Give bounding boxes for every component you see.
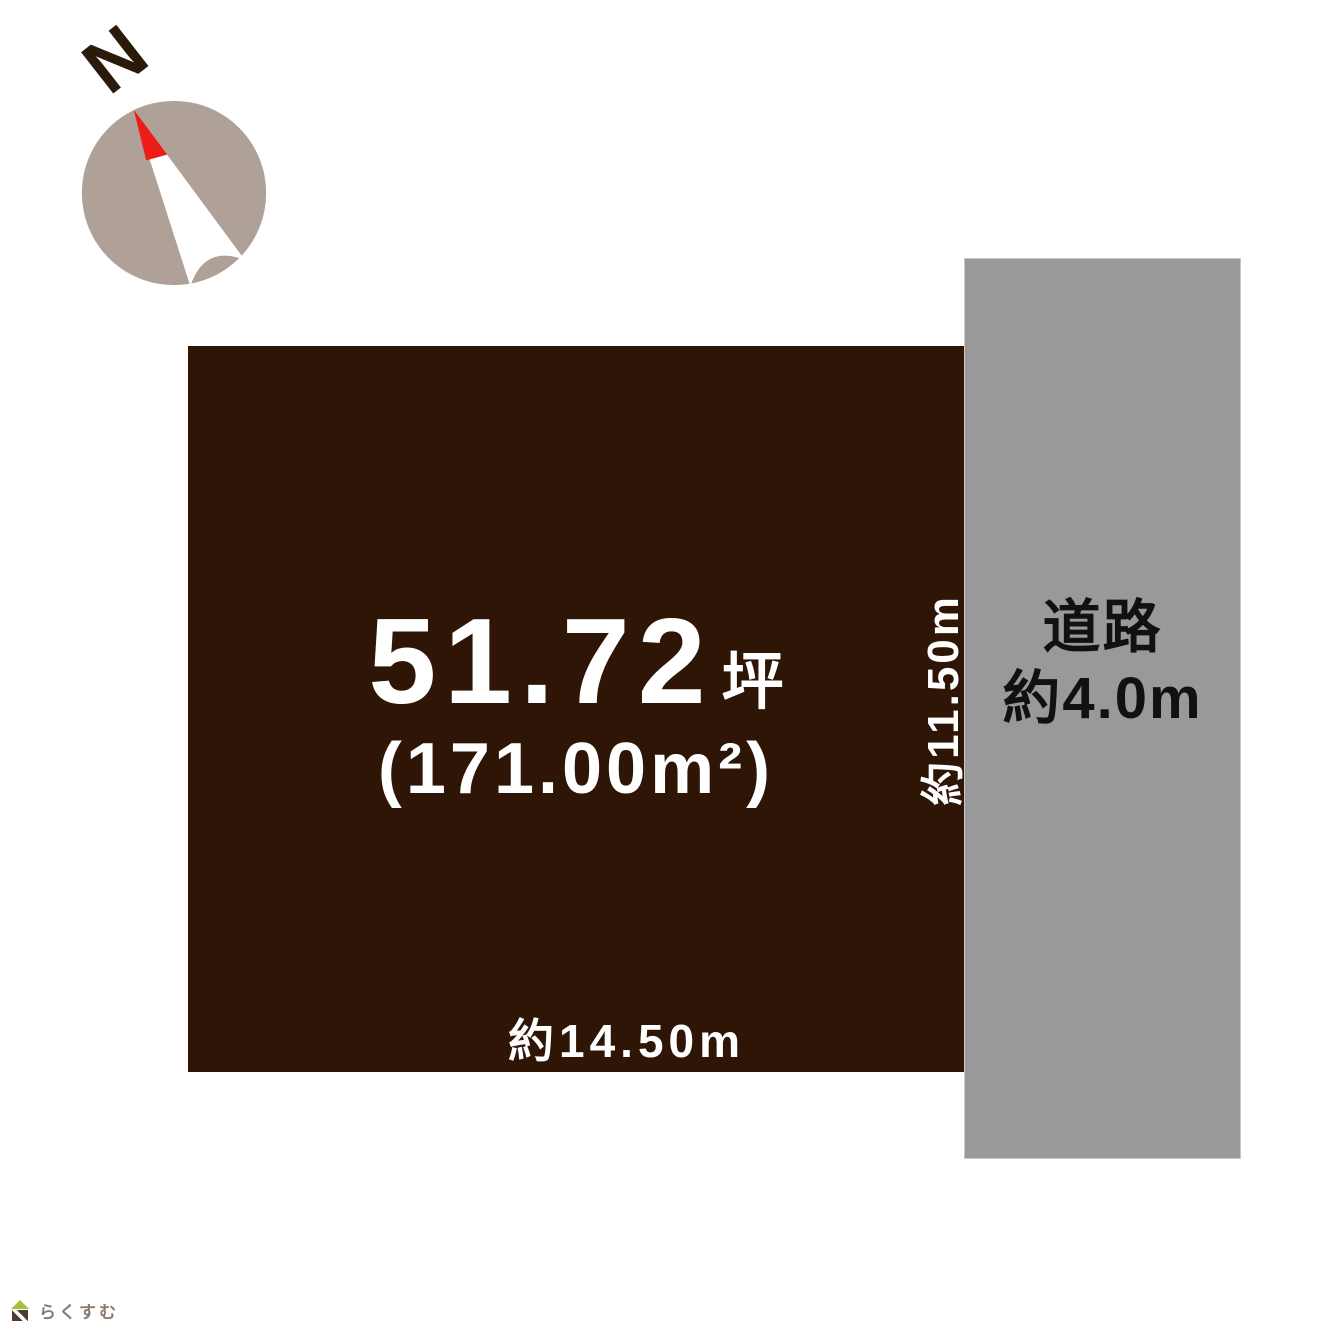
- house-roof-shape: [11, 1300, 29, 1309]
- land-plot-diagram: N 道路 約4.0m 51.72坪 (171.00m²) 約11.50m 約14…: [0, 0, 1333, 1333]
- road-label: 道路 約4.0m: [965, 593, 1240, 735]
- bottom-dimension-label: 約14.50m: [508, 1018, 745, 1064]
- compass: [78, 97, 270, 289]
- north-label: N: [70, 13, 160, 107]
- house-body-shape: [12, 1310, 28, 1321]
- compass-needle-icon: [78, 97, 270, 289]
- road-name: 道路: [965, 593, 1240, 664]
- plot-area-tsubo-line: 51.72坪: [188, 600, 964, 722]
- plot-area-square-meters: (171.00m²): [188, 730, 964, 809]
- house-icon: [10, 1300, 32, 1322]
- road-area: 道路 約4.0m: [964, 258, 1241, 1159]
- brand-logo: らくすむ: [10, 1298, 119, 1323]
- plot-area-block: 51.72坪 (171.00m²): [188, 600, 964, 809]
- side-dimension-label: 約11.50m: [921, 575, 967, 825]
- brand-name: らくすむ: [39, 1298, 119, 1323]
- plot-area-tsubo-value: 51.72: [368, 593, 713, 729]
- plot-area-tsubo-unit: 坪: [722, 648, 784, 717]
- land-plot: 51.72坪 (171.00m²) 約11.50m 約14.50m: [188, 346, 964, 1072]
- road-width-label: 約4.0m: [965, 664, 1240, 735]
